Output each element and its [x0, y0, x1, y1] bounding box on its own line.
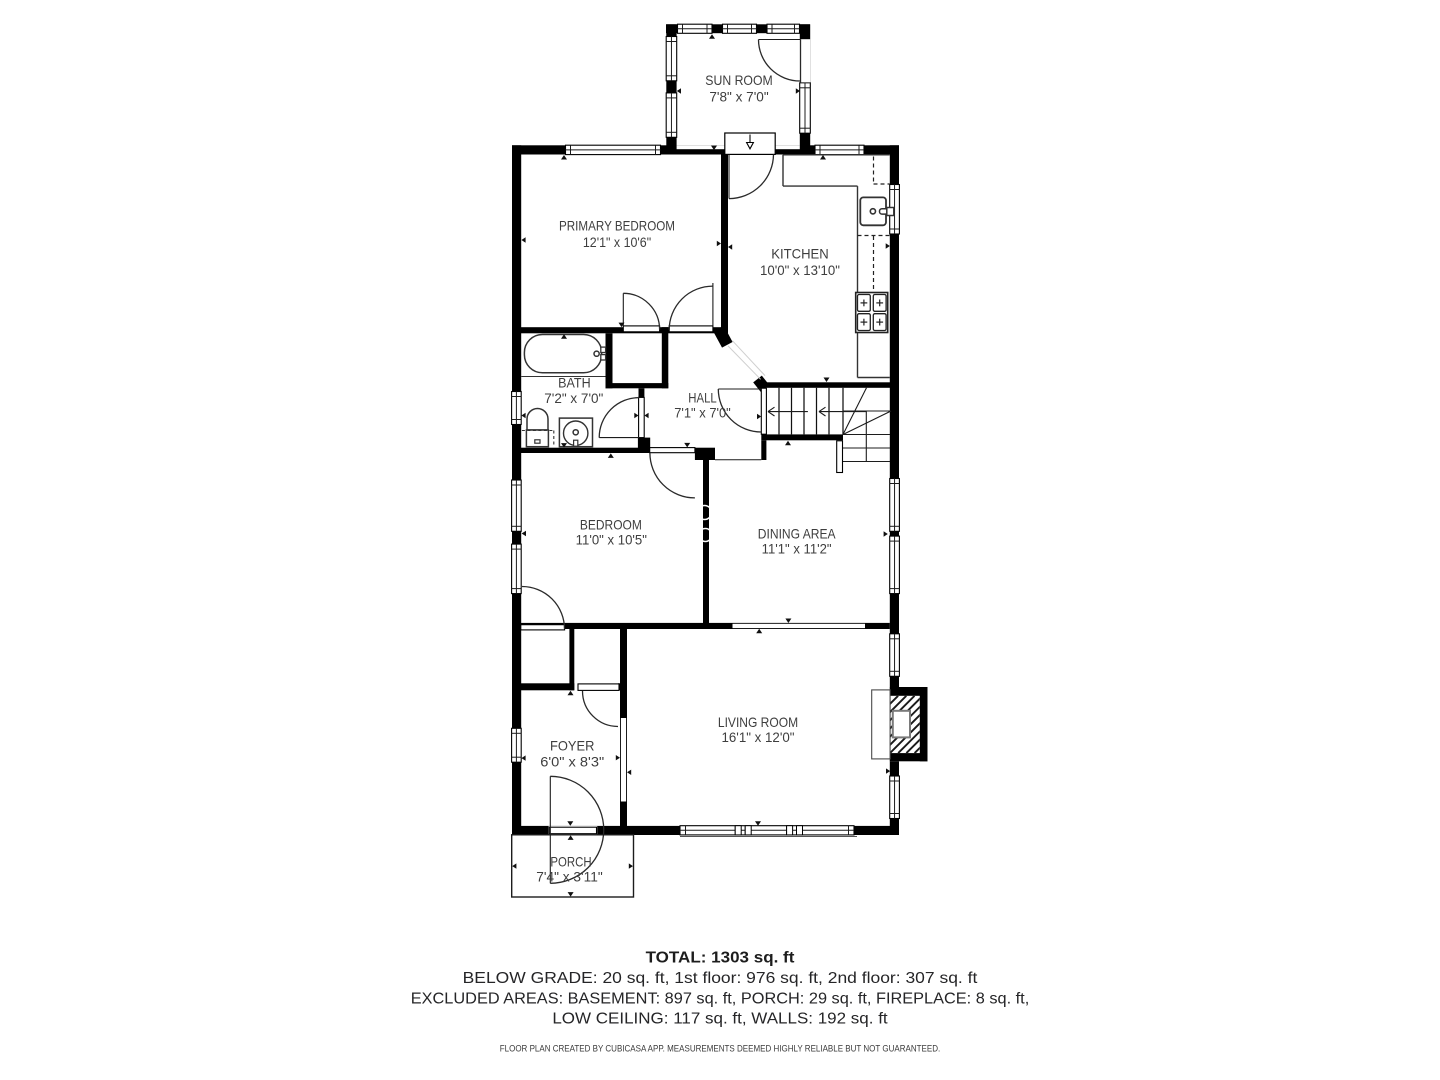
svg-text:6'0" x 8'3": 6'0" x 8'3": [540, 755, 604, 770]
svg-text:12'1" x 10'6": 12'1" x 10'6": [583, 235, 651, 250]
svg-text:DINING AREA: DINING AREA: [758, 526, 836, 541]
svg-text:16'1" x 12'0": 16'1" x 12'0": [722, 730, 795, 745]
svg-text:TOTAL: 1303 sq. ft: TOTAL: 1303 sq. ft: [646, 950, 795, 967]
svg-text:11'1" x 11'2": 11'1" x 11'2": [762, 541, 832, 556]
svg-text:PORCH: PORCH: [550, 855, 591, 870]
svg-text:7'4" x 3'11": 7'4" x 3'11": [536, 870, 602, 885]
svg-text:BEDROOM: BEDROOM: [580, 518, 642, 533]
svg-text:HALL: HALL: [688, 390, 717, 405]
svg-text:10'0" x 13'10": 10'0" x 13'10": [760, 263, 840, 278]
svg-text:SUN ROOM: SUN ROOM: [705, 73, 772, 88]
svg-text:BELOW GRADE: 20 sq. ft, 1st fl: BELOW GRADE: 20 sq. ft, 1st floor: 976 s…: [463, 970, 978, 987]
svg-text:EXCLUDED AREAS: BASEMENT: 897: EXCLUDED AREAS: BASEMENT: 897 sq. ft, PO…: [411, 990, 1030, 1007]
svg-text:7'8" x 7'0": 7'8" x 7'0": [709, 89, 768, 104]
svg-text:7'2" x 7'0": 7'2" x 7'0": [544, 391, 603, 406]
svg-text:PRIMARY BEDROOM: PRIMARY BEDROOM: [559, 219, 675, 234]
svg-text:BATH: BATH: [558, 375, 591, 390]
svg-text:7'1" x 7'0": 7'1" x 7'0": [674, 405, 731, 420]
svg-text:FOYER: FOYER: [550, 738, 594, 753]
svg-text:KITCHEN: KITCHEN: [771, 247, 829, 262]
svg-text:FLOOR PLAN CREATED BY CUBICASA: FLOOR PLAN CREATED BY CUBICASA APP. MEAS…: [500, 1043, 941, 1053]
svg-text:LIVING ROOM: LIVING ROOM: [718, 715, 798, 730]
svg-text:11'0" x 10'5": 11'0" x 10'5": [576, 532, 647, 547]
svg-text:LOW CEILING: 117 sq. ft, WALLS: LOW CEILING: 117 sq. ft, WALLS: 192 sq. …: [552, 1011, 888, 1028]
